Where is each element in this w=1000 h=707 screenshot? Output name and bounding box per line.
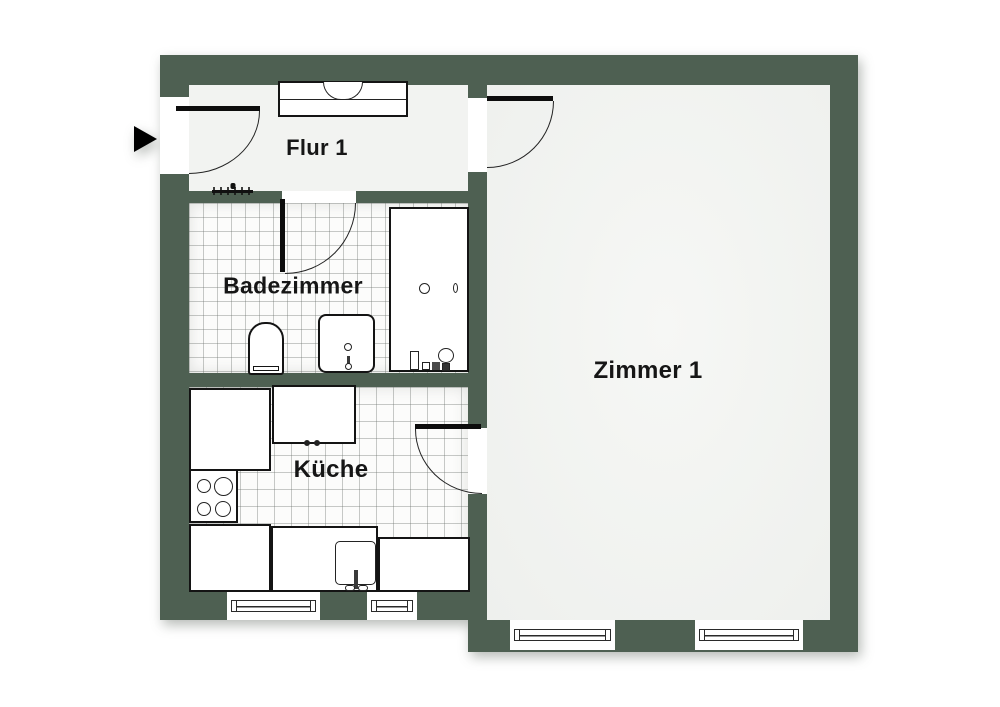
wall-mid-upper xyxy=(468,85,487,98)
zimmer-floor xyxy=(487,85,830,620)
flur-bath-opening xyxy=(282,191,356,203)
bathtub-icon xyxy=(389,207,469,372)
floor-plan: Flur 1 Badezimmer Küche Zimmer 1 xyxy=(0,0,1000,707)
flur-zimmer-opening xyxy=(468,98,487,172)
wall-top xyxy=(160,55,858,85)
zimmer-window-1-icon xyxy=(510,620,615,650)
wardrobe-icon xyxy=(278,81,408,117)
burner-icon xyxy=(214,477,233,496)
kitchen-cabinet xyxy=(272,385,356,444)
burner-icon xyxy=(197,479,211,493)
toilet-icon xyxy=(248,322,284,375)
window-glass xyxy=(231,600,316,612)
building: Flur 1 Badezimmer Küche Zimmer 1 xyxy=(0,0,1000,707)
wall-left-lower xyxy=(160,174,189,620)
entrance-arrow-icon xyxy=(134,126,157,152)
washbasin-icon xyxy=(318,314,375,373)
drain-icon xyxy=(419,283,430,294)
kitchen-counter xyxy=(189,388,271,471)
stove-icon xyxy=(189,469,238,523)
tub-faucet-icon xyxy=(438,348,454,363)
tub-fitting xyxy=(432,362,440,370)
radiator-icon xyxy=(212,186,253,196)
wall-mid-middle xyxy=(468,172,487,428)
cabinet-handle xyxy=(314,440,320,446)
kitchen-window-2-icon xyxy=(367,592,417,620)
burner-icon xyxy=(197,502,211,516)
zimmer-window-2-icon xyxy=(695,620,803,650)
cabinet-handle xyxy=(304,440,310,446)
room-label-flur: Flur 1 xyxy=(286,135,348,161)
wall-kitchen-bottom xyxy=(160,592,487,620)
kitchen-counter xyxy=(189,524,271,592)
kitchen-sink-icon xyxy=(335,541,376,585)
room-label-zimmer1: Zimmer 1 xyxy=(593,357,702,385)
wardrobe-handle-icon xyxy=(323,82,363,100)
wall-flur-bath-right xyxy=(356,191,468,203)
overflow-icon xyxy=(453,283,458,293)
tub-fitting xyxy=(442,363,450,371)
window-glass xyxy=(699,629,799,641)
room-label-kueche: Küche xyxy=(294,456,369,484)
tub-fitting xyxy=(422,362,430,370)
window-glass xyxy=(514,629,611,641)
drain-icon xyxy=(344,343,352,351)
tub-fitting xyxy=(410,351,419,370)
window-glass xyxy=(371,600,413,612)
burner-icon xyxy=(215,501,231,517)
kitchen-counter xyxy=(378,537,470,592)
wall-right xyxy=(830,85,858,652)
room-label-badezimmer: Badezimmer xyxy=(223,273,363,300)
kitchen-window-1-icon xyxy=(227,592,320,620)
